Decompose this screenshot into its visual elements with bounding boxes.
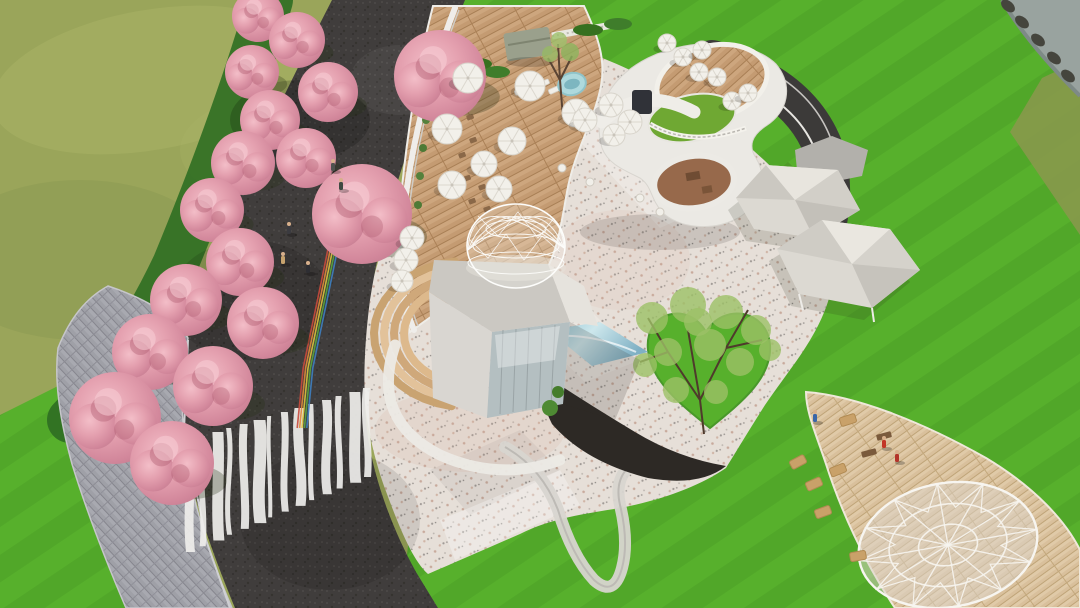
canopy-texture bbox=[327, 93, 340, 106]
parasol-pole bbox=[610, 104, 613, 107]
canopy-highlight bbox=[133, 327, 156, 350]
planter-shrub bbox=[542, 400, 558, 416]
cafe-table bbox=[656, 208, 664, 216]
parasol-pole bbox=[698, 71, 701, 74]
canopy-highlight bbox=[340, 182, 370, 212]
canopy-highlight bbox=[247, 300, 269, 322]
parasol-pole bbox=[401, 280, 404, 283]
geodesic-dome-skylight bbox=[466, 204, 566, 288]
person-head bbox=[306, 261, 310, 265]
parasol-pole bbox=[613, 134, 616, 137]
entrance-door bbox=[632, 90, 652, 114]
canopy-texture bbox=[114, 419, 134, 439]
canopy-texture bbox=[262, 324, 278, 340]
canopy-highlight bbox=[419, 46, 447, 74]
person-body bbox=[895, 454, 899, 462]
hedge-blob bbox=[604, 18, 632, 30]
person-body bbox=[331, 163, 335, 171]
parasol-pole bbox=[483, 163, 486, 166]
canopy-highlight bbox=[225, 240, 245, 260]
parasol-pole bbox=[411, 237, 414, 240]
rendering-stage bbox=[0, 0, 1080, 608]
parasol-pole bbox=[701, 49, 704, 52]
canopy-highlight bbox=[94, 388, 122, 416]
canopy-highlight bbox=[198, 189, 217, 208]
tree-foliage bbox=[551, 32, 567, 48]
hedge-blob bbox=[484, 66, 510, 78]
canopy-highlight bbox=[229, 142, 248, 161]
canopy-texture bbox=[171, 464, 189, 482]
parasol-pole bbox=[682, 56, 685, 59]
cafe-table bbox=[586, 178, 594, 186]
zebra-stripe bbox=[280, 412, 288, 512]
canopy-texture bbox=[361, 216, 383, 238]
parasol-pole bbox=[467, 77, 470, 80]
canopy-texture bbox=[257, 17, 268, 28]
canopy-highlight bbox=[170, 277, 192, 299]
parasol-pole bbox=[405, 259, 408, 262]
parasol-pole bbox=[716, 76, 719, 79]
zebra-stripe bbox=[349, 392, 361, 483]
park-rendering bbox=[0, 0, 1080, 608]
foliage-clump bbox=[709, 295, 743, 329]
planter bbox=[414, 201, 422, 209]
planter-shrub bbox=[552, 386, 564, 398]
canopy-texture bbox=[296, 41, 308, 53]
foliage-clump bbox=[684, 308, 712, 336]
canopy-texture bbox=[242, 164, 256, 178]
parasol-pole bbox=[511, 140, 514, 143]
canopy-texture bbox=[269, 121, 282, 134]
foliage-clump bbox=[663, 377, 689, 403]
parasol-pole bbox=[584, 119, 587, 122]
foliage-clump bbox=[654, 338, 682, 366]
tree-foliage bbox=[542, 46, 558, 62]
foliage-clump bbox=[759, 339, 781, 361]
person-body bbox=[339, 182, 343, 190]
foliage-clump bbox=[636, 302, 668, 334]
person-head bbox=[895, 450, 899, 454]
person-body bbox=[882, 440, 886, 448]
canopy-texture bbox=[149, 353, 166, 370]
canopy-texture bbox=[212, 387, 230, 405]
cafe-table bbox=[636, 194, 644, 202]
person-head bbox=[281, 252, 285, 256]
canopy-texture bbox=[211, 211, 225, 225]
person-head bbox=[882, 436, 886, 440]
planter bbox=[416, 172, 424, 180]
parasol-pole bbox=[629, 121, 632, 124]
canopy-highlight bbox=[315, 73, 333, 91]
canopy-highlight bbox=[293, 139, 311, 157]
parasol-pole bbox=[747, 92, 750, 95]
hedge-blob bbox=[573, 24, 603, 36]
canopy-texture bbox=[305, 159, 318, 172]
canopy-texture bbox=[239, 263, 254, 278]
foliage-clump bbox=[726, 348, 754, 376]
canopy-highlight bbox=[257, 101, 275, 119]
parasol-pole bbox=[446, 128, 449, 131]
person-body bbox=[281, 256, 285, 264]
person-head bbox=[813, 410, 817, 414]
person-body bbox=[287, 226, 291, 234]
canopy-texture bbox=[251, 73, 263, 85]
parasol-pole bbox=[666, 42, 669, 45]
person-head bbox=[339, 178, 343, 182]
parasol-pole bbox=[731, 100, 734, 103]
parasol-pole bbox=[451, 184, 454, 187]
person-body bbox=[306, 265, 310, 273]
canopy-texture bbox=[185, 301, 201, 317]
parasol-pole bbox=[498, 188, 501, 191]
zebra-stripe bbox=[308, 404, 314, 500]
person-head bbox=[287, 222, 291, 226]
canopy-highlight bbox=[195, 360, 219, 384]
cafe-table bbox=[558, 164, 566, 172]
foliage-clump bbox=[704, 380, 728, 404]
person-body bbox=[813, 414, 817, 422]
planter bbox=[419, 144, 427, 152]
canopy-highlight bbox=[284, 22, 301, 39]
canopy-highlight bbox=[153, 436, 178, 461]
zebra-stripe bbox=[253, 420, 267, 523]
parasol-pole bbox=[529, 85, 532, 88]
person-head bbox=[331, 159, 335, 163]
canopy-highlight bbox=[240, 54, 256, 70]
